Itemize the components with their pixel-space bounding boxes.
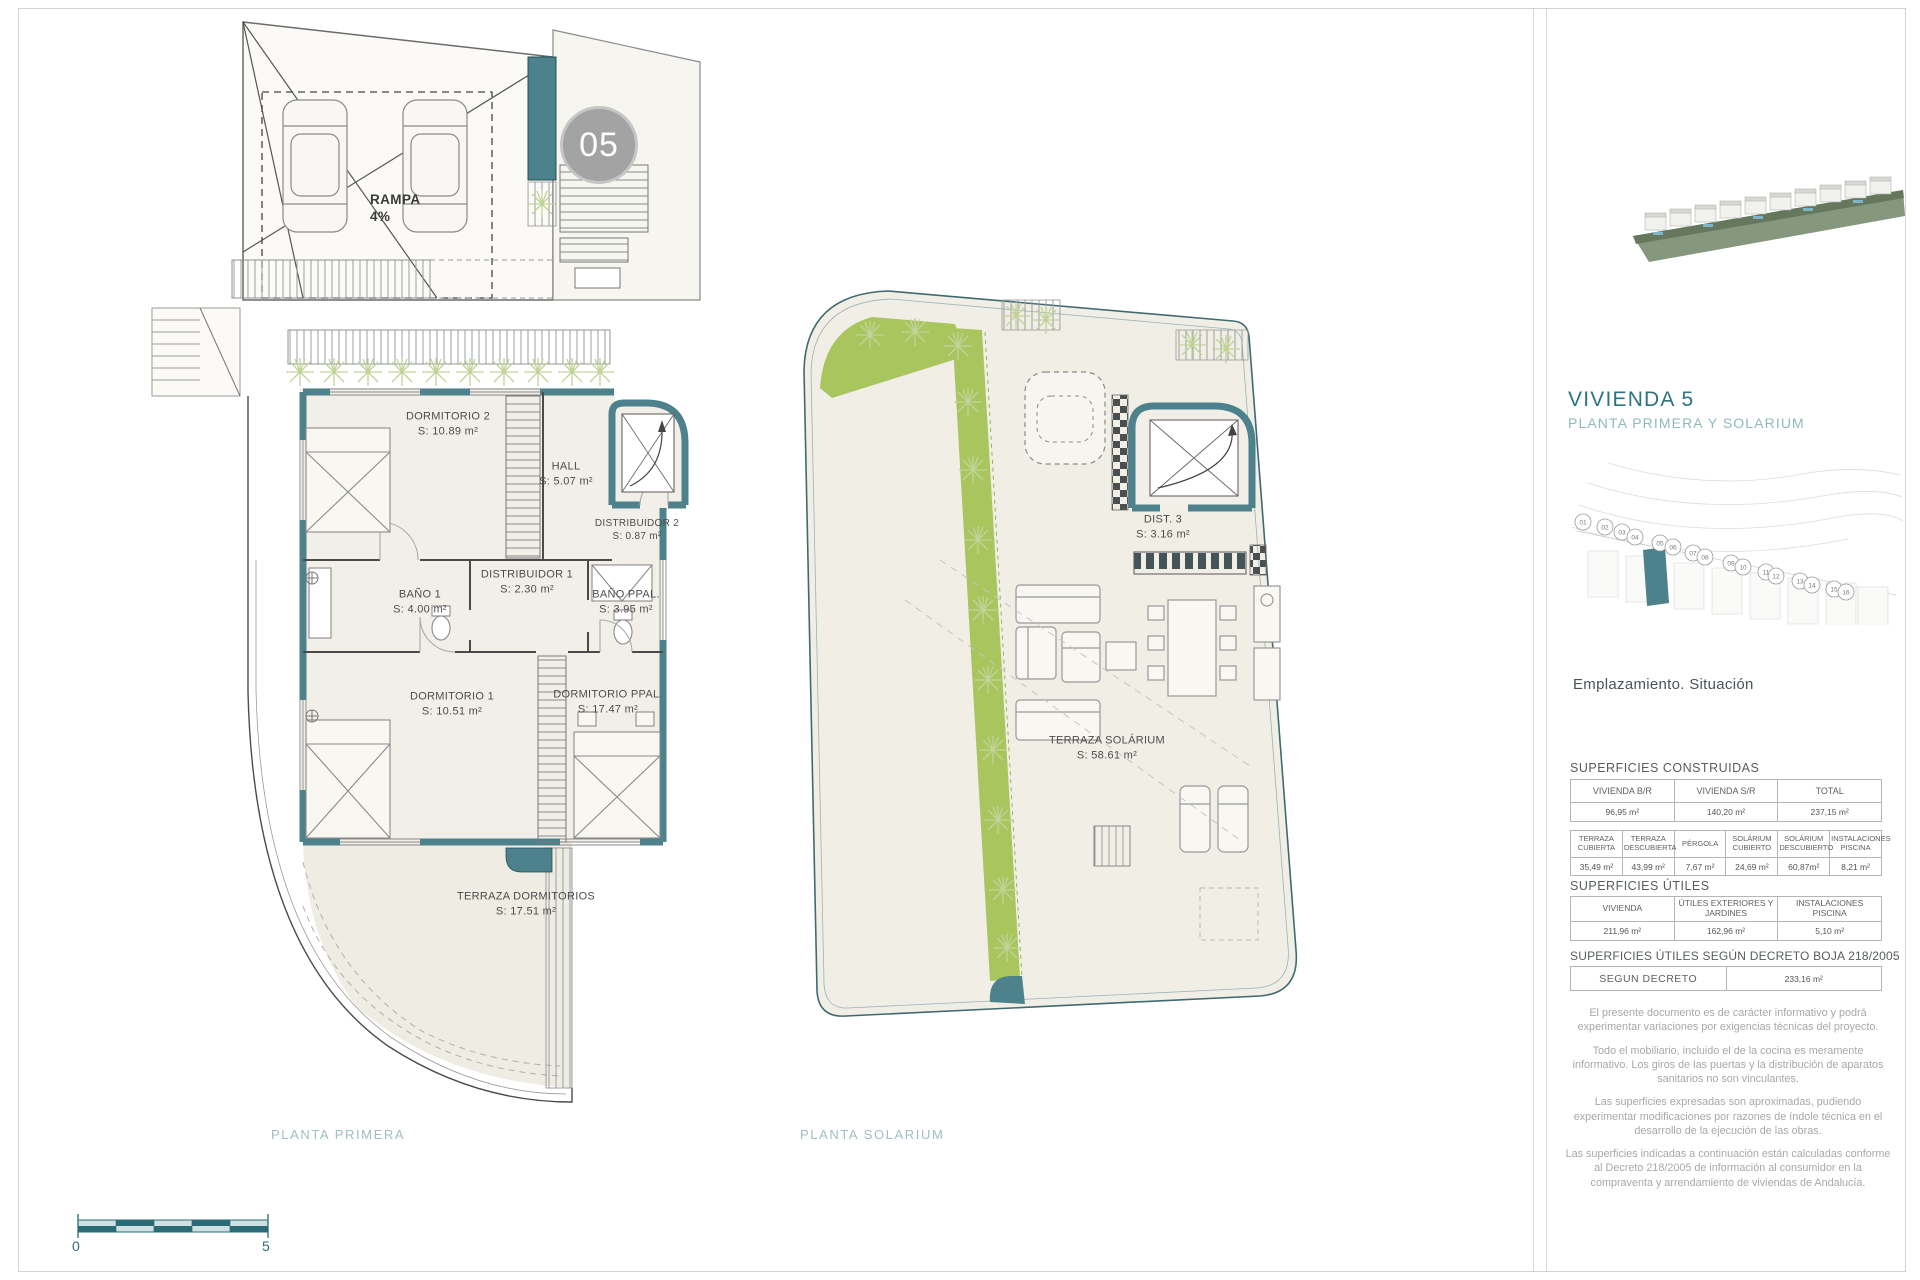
room-label-distribuidor-2: DISTRIBUIDOR 2 S: 0.87 m²: [595, 517, 679, 543]
col-header: PÉRGOLA: [1674, 831, 1726, 858]
room-area: S: 17.47 m²: [578, 702, 638, 717]
plan-solarium: [804, 291, 1296, 1016]
room-area: S: 0.87 m²: [612, 530, 661, 543]
col-header: VIVIENDA B/R: [1571, 780, 1675, 803]
col-header: TOTAL: [1778, 780, 1882, 803]
room-name: BAÑO PPAL.: [592, 587, 660, 602]
room-area: S: 17.51 m²: [496, 904, 556, 919]
room-name: TERRAZA SOLÁRIUM: [1049, 733, 1165, 748]
cell-value: 7,67 m²: [1674, 858, 1726, 876]
room-name: DIST. 3: [1144, 512, 1182, 527]
ramp-slope: 4%: [370, 209, 421, 226]
cell-value: 96,95 m²: [1571, 803, 1675, 822]
cell-value: 5,10 m²: [1778, 922, 1882, 941]
plot-number: 11: [1763, 570, 1770, 577]
scale-bar: [78, 1214, 268, 1238]
col-header: SOLÁRIUM CUBIERTO: [1726, 831, 1778, 858]
scale-start-label: 0: [72, 1238, 80, 1254]
plot-number: 16: [1842, 590, 1850, 597]
heading-superficies-construidas: SUPERFICIES CONSTRUIDAS: [1570, 761, 1759, 775]
unit-number: 05: [579, 126, 619, 165]
room-label-dormitorio-2: DORMITORIO 2 S: 10.89 m²: [406, 409, 490, 438]
col-header: SEGUN DECRETO: [1571, 967, 1727, 991]
cell-value: 35,49 m²: [1571, 858, 1623, 876]
site-location-map: 01 02 03 04 05 06 07 08 09 10 11 12 13 1…: [1548, 455, 1905, 625]
cell-value: 60,87m²: [1778, 858, 1830, 876]
plot-number: 03: [1618, 530, 1626, 537]
room-label-dormitorio-ppal: DORMITORIO PPAL. S: 17.47 m²: [553, 687, 663, 716]
plan-primera: [152, 22, 700, 1102]
table-utiles: VIVIENDA ÚTILES EXTERIORES Y JARDINES IN…: [1570, 896, 1882, 941]
room-label-dormitorio-1: DORMITORIO 1 S: 10.51 m²: [410, 689, 494, 718]
plot-number: 07: [1689, 551, 1697, 558]
highlighted-plot-05: [1643, 547, 1669, 606]
plot-number: 02: [1601, 525, 1609, 532]
col-header: INSTALACIONES PISCINA: [1778, 897, 1882, 922]
car-icon: [283, 100, 347, 232]
cell-value: 43,99 m²: [1622, 858, 1674, 876]
col-header: INSTALACIONES PISCINA: [1830, 831, 1882, 858]
room-name: DISTRIBUIDOR 1: [481, 567, 573, 582]
room-name: DISTRIBUIDOR 2: [595, 517, 679, 530]
disclaimer-paragraph: El presente documento es de carácter inf…: [1564, 1006, 1892, 1035]
room-name: HALL: [552, 459, 581, 474]
col-header: TERRAZA DESCUBIERTA: [1622, 831, 1674, 858]
plot-number: 05: [1656, 541, 1664, 548]
table-construidas-totales: VIVIENDA B/R VIVIENDA S/R TOTAL 96,95 m²…: [1570, 779, 1882, 822]
plan-sheet: DORMITORIO 2 S: 10.89 m² HALL S: 5.07 m²…: [0, 0, 1920, 1280]
vivienda-title: VIVIENDA 5: [1568, 388, 1694, 412]
col-header: VIVIENDA: [1571, 897, 1675, 922]
plot-number: 06: [1669, 545, 1677, 552]
disclaimer-paragraph: Todo el mobiliario, incluido el de la co…: [1564, 1044, 1892, 1087]
room-label-terraza-dormitorios: TERRAZA DORMITORIOS S: 17.51 m²: [457, 889, 595, 918]
caption-planta-primera: PLANTA PRIMERA: [271, 1127, 405, 1142]
cell-value: 162,96 m²: [1674, 922, 1778, 941]
cell-value: 211,96 m²: [1571, 922, 1675, 941]
scale-end-label: 5: [262, 1238, 270, 1254]
room-area: S: 3.16 m²: [1136, 527, 1190, 542]
room-area: S: 10.89 m²: [418, 424, 478, 439]
heading-superficies-utiles: SUPERFICIES ÚTILES: [1570, 879, 1710, 893]
room-label-bano-ppal: BAÑO PPAL. S: 3.95 m²: [592, 587, 660, 616]
plot-number: 13: [1796, 579, 1804, 586]
legal-disclaimers: El presente documento es de carácter inf…: [1564, 1006, 1892, 1199]
room-area: S: 58.61 m²: [1077, 748, 1137, 763]
col-header: VIVIENDA S/R: [1674, 780, 1778, 803]
ramp-text: RAMPA: [370, 192, 421, 209]
col-header: ÚTILES EXTERIORES Y JARDINES: [1674, 897, 1778, 922]
room-name: DORMITORIO PPAL.: [553, 687, 663, 702]
cell-value: 233,16 m²: [1726, 967, 1882, 991]
cell-value: 237,15 m²: [1778, 803, 1882, 822]
heading-decreto: SUPERFICIES ÚTILES SEGÚN DECRETO BOJA 21…: [1570, 949, 1900, 963]
development-render-image: [1633, 150, 1905, 262]
col-header: SOLÁRIUM DESCUBIERTO: [1778, 831, 1830, 858]
room-area: S: 4.00 m²: [393, 602, 447, 617]
ramp-label: RAMPA 4%: [370, 192, 421, 226]
plot-number: 08: [1701, 555, 1709, 562]
plot-number: 04: [1631, 535, 1639, 542]
room-area: S: 10.51 m²: [422, 704, 482, 719]
room-area: S: 3.95 m²: [599, 602, 653, 617]
caption-planta-solarium: PLANTA SOLARIUM: [800, 1127, 944, 1142]
disclaimer-paragraph: Las superficies expresadas son aproximad…: [1564, 1095, 1892, 1138]
cell-value: 8,21 m²: [1830, 858, 1882, 876]
plot-number: 14: [1808, 583, 1816, 590]
plot-number: 01: [1579, 520, 1587, 527]
info-sidebar: VIVIENDA 5 PLANTA PRIMERA Y SOLARIUM: [1548, 0, 1908, 1280]
cell-value: 140,20 m²: [1674, 803, 1778, 822]
room-label-dist-3: DIST. 3 S: 3.16 m²: [1136, 512, 1190, 541]
room-name: BAÑO 1: [399, 587, 441, 602]
room-label-bano-1: BAÑO 1 S: 4.00 m²: [393, 587, 447, 616]
room-name: DORMITORIO 2: [406, 409, 490, 424]
plot-number: 15: [1830, 587, 1838, 594]
site-caption: Emplazamiento. Situación: [1573, 676, 1754, 693]
plot-number: 09: [1727, 561, 1735, 568]
table-construidas-exteriores: TERRAZA CUBIERTA TERRAZA DESCUBIERTA PÉR…: [1570, 830, 1882, 876]
room-name: DORMITORIO 1: [410, 689, 494, 704]
col-header: TERRAZA CUBIERTA: [1571, 831, 1623, 858]
room-area: S: 5.07 m²: [539, 474, 593, 489]
unit-number-badge: 05: [560, 106, 638, 184]
cell-value: 24,69 m²: [1726, 858, 1778, 876]
table-decreto: SEGUN DECRETO 233,16 m²: [1570, 966, 1882, 991]
plot-number: 12: [1772, 574, 1780, 581]
vivienda-subtitle: PLANTA PRIMERA Y SOLARIUM: [1568, 415, 1805, 431]
plot-number: 10: [1739, 565, 1747, 572]
room-label-hall: HALL S: 5.07 m²: [539, 459, 593, 488]
room-name: TERRAZA DORMITORIOS: [457, 889, 595, 904]
room-label-distribuidor-1: DISTRIBUIDOR 1 S: 2.30 m²: [481, 567, 573, 596]
disclaimer-paragraph: Las superficies indicadas a continuación…: [1564, 1147, 1892, 1190]
room-label-terraza-solarium: TERRAZA SOLÁRIUM S: 58.61 m²: [1049, 733, 1165, 762]
room-area: S: 2.30 m²: [500, 582, 554, 597]
